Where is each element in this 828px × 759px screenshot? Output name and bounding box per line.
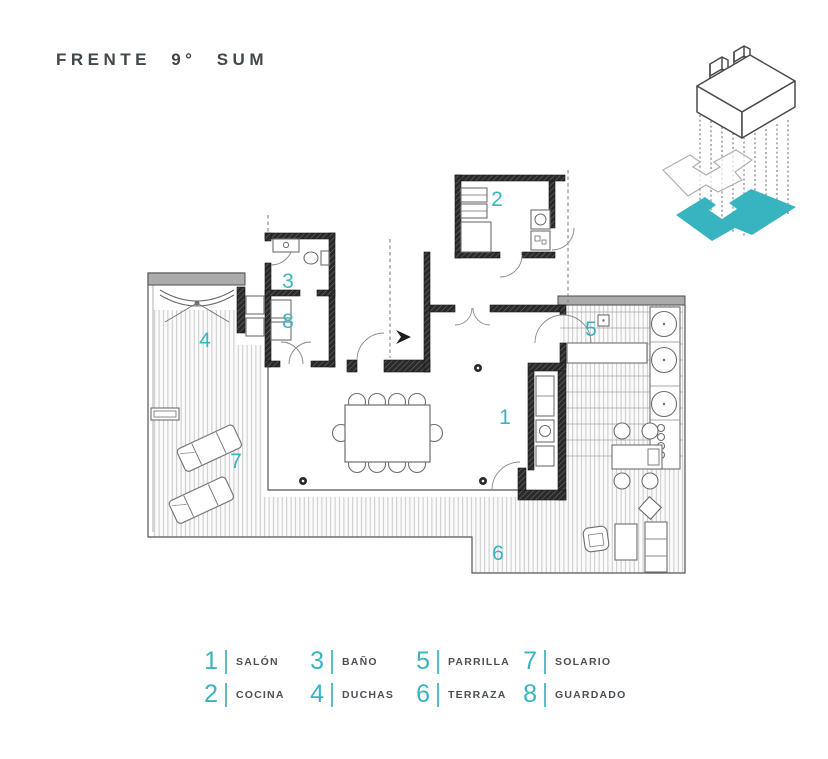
legend-divider: [544, 650, 546, 674]
legend-label: TERRAZA: [448, 689, 507, 701]
legend-label: PARRILLA: [448, 656, 510, 668]
legend: 1 SALÓN 2 COCINA 3 BAÑO 4 DUCHAS 5 PARRI…: [198, 645, 647, 711]
toilet-icon: [304, 252, 318, 264]
bathroom-fixtures: [273, 239, 329, 265]
toilet-tank-icon: [321, 251, 329, 265]
plan-number-terraza: 6: [492, 542, 504, 565]
legend-divider: [225, 650, 227, 674]
ghost-floor-outline: [663, 150, 752, 196]
legend-number: 7: [517, 649, 537, 674]
highlighted-floor: [676, 189, 796, 241]
legend-number: 5: [410, 649, 430, 674]
legend-divider: [437, 683, 439, 707]
legend-item-bano: 3 BAÑO: [304, 649, 410, 674]
legend-item-salon: 1 SALÓN: [198, 649, 304, 674]
floor-plan-page: FRENTE 9° SUM: [0, 0, 828, 759]
dining-table: [345, 405, 430, 462]
deck-edge-band-left: [148, 273, 245, 285]
deck-edge-band-right: [558, 296, 685, 305]
legend-number: 8: [517, 682, 537, 707]
legend-label: DUCHAS: [342, 689, 394, 701]
plan-number-duchas: 4: [199, 329, 211, 352]
sofa: [645, 522, 667, 572]
armchair: [582, 525, 609, 552]
plan-number-guardado: 8: [282, 310, 294, 333]
plan-number-cocina: 2: [491, 188, 503, 211]
legend-divider: [225, 683, 227, 707]
legend-label: SOLARIO: [555, 656, 611, 668]
kitchen-fixtures: [461, 188, 550, 252]
plan-number-parrilla: 5: [585, 318, 597, 341]
building-3d-icon: [663, 46, 796, 241]
legend-number: 3: [304, 649, 324, 674]
entry-arrow-icon: [396, 330, 411, 344]
legend-item-guardado: 8 GUARDADO: [517, 682, 647, 707]
legend-number: 4: [304, 682, 324, 707]
legend-label: GUARDADO: [555, 689, 626, 701]
counter-table: [567, 343, 647, 363]
legend-divider: [331, 650, 333, 674]
sink-icon: [273, 239, 299, 252]
legend-item-terraza: 6 TERRAZA: [410, 682, 517, 707]
legend-item-parrilla: 5 PARRILLA: [410, 649, 517, 674]
bar-fixtures: [536, 376, 554, 466]
legend-label: COCINA: [236, 689, 285, 701]
side-table: [615, 524, 637, 560]
legend-divider: [331, 683, 333, 707]
legend-number: 1: [198, 649, 218, 674]
plan-number-salon: 1: [499, 406, 511, 429]
planter: [151, 408, 179, 420]
legend-item-solario: 7 SOLARIO: [517, 649, 647, 674]
legend-divider: [544, 683, 546, 707]
legend-label: BAÑO: [342, 656, 378, 668]
plan-number-bano: 3: [282, 270, 294, 293]
legend-divider: [437, 650, 439, 674]
plan-number-solario: 7: [230, 450, 242, 473]
dining-set: [333, 394, 443, 473]
legend-number: 2: [198, 682, 218, 707]
legend-label: SALÓN: [236, 656, 279, 668]
legend-item-cocina: 2 COCINA: [198, 682, 304, 707]
stove-icon: [531, 210, 550, 229]
legend-number: 6: [410, 682, 430, 707]
legend-item-duchas: 4 DUCHAS: [304, 682, 410, 707]
